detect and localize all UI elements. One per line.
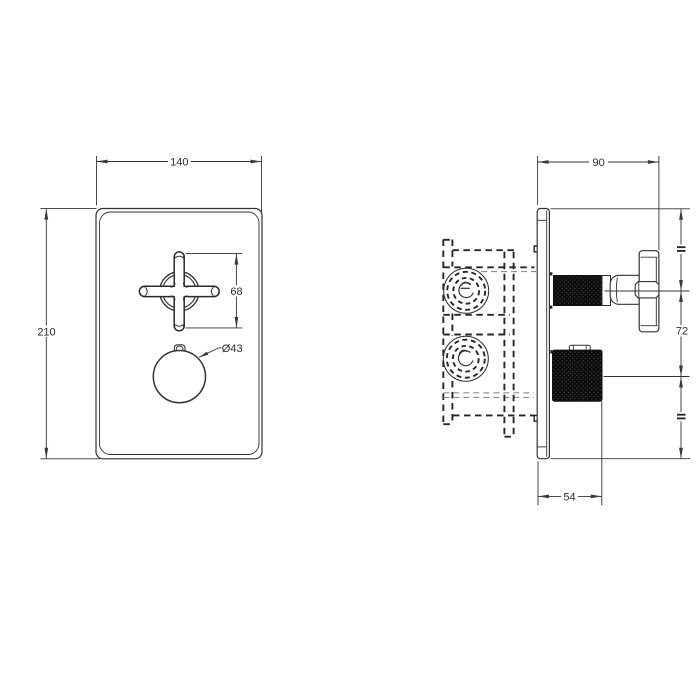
svg-text:68: 68 [230,286,242,298]
svg-text:90: 90 [592,157,604,169]
svg-text:140: 140 [170,156,188,168]
svg-text:Ø43: Ø43 [222,343,243,355]
svg-text:210: 210 [37,326,55,338]
svg-text:72: 72 [676,326,688,338]
svg-text:54: 54 [563,491,575,503]
